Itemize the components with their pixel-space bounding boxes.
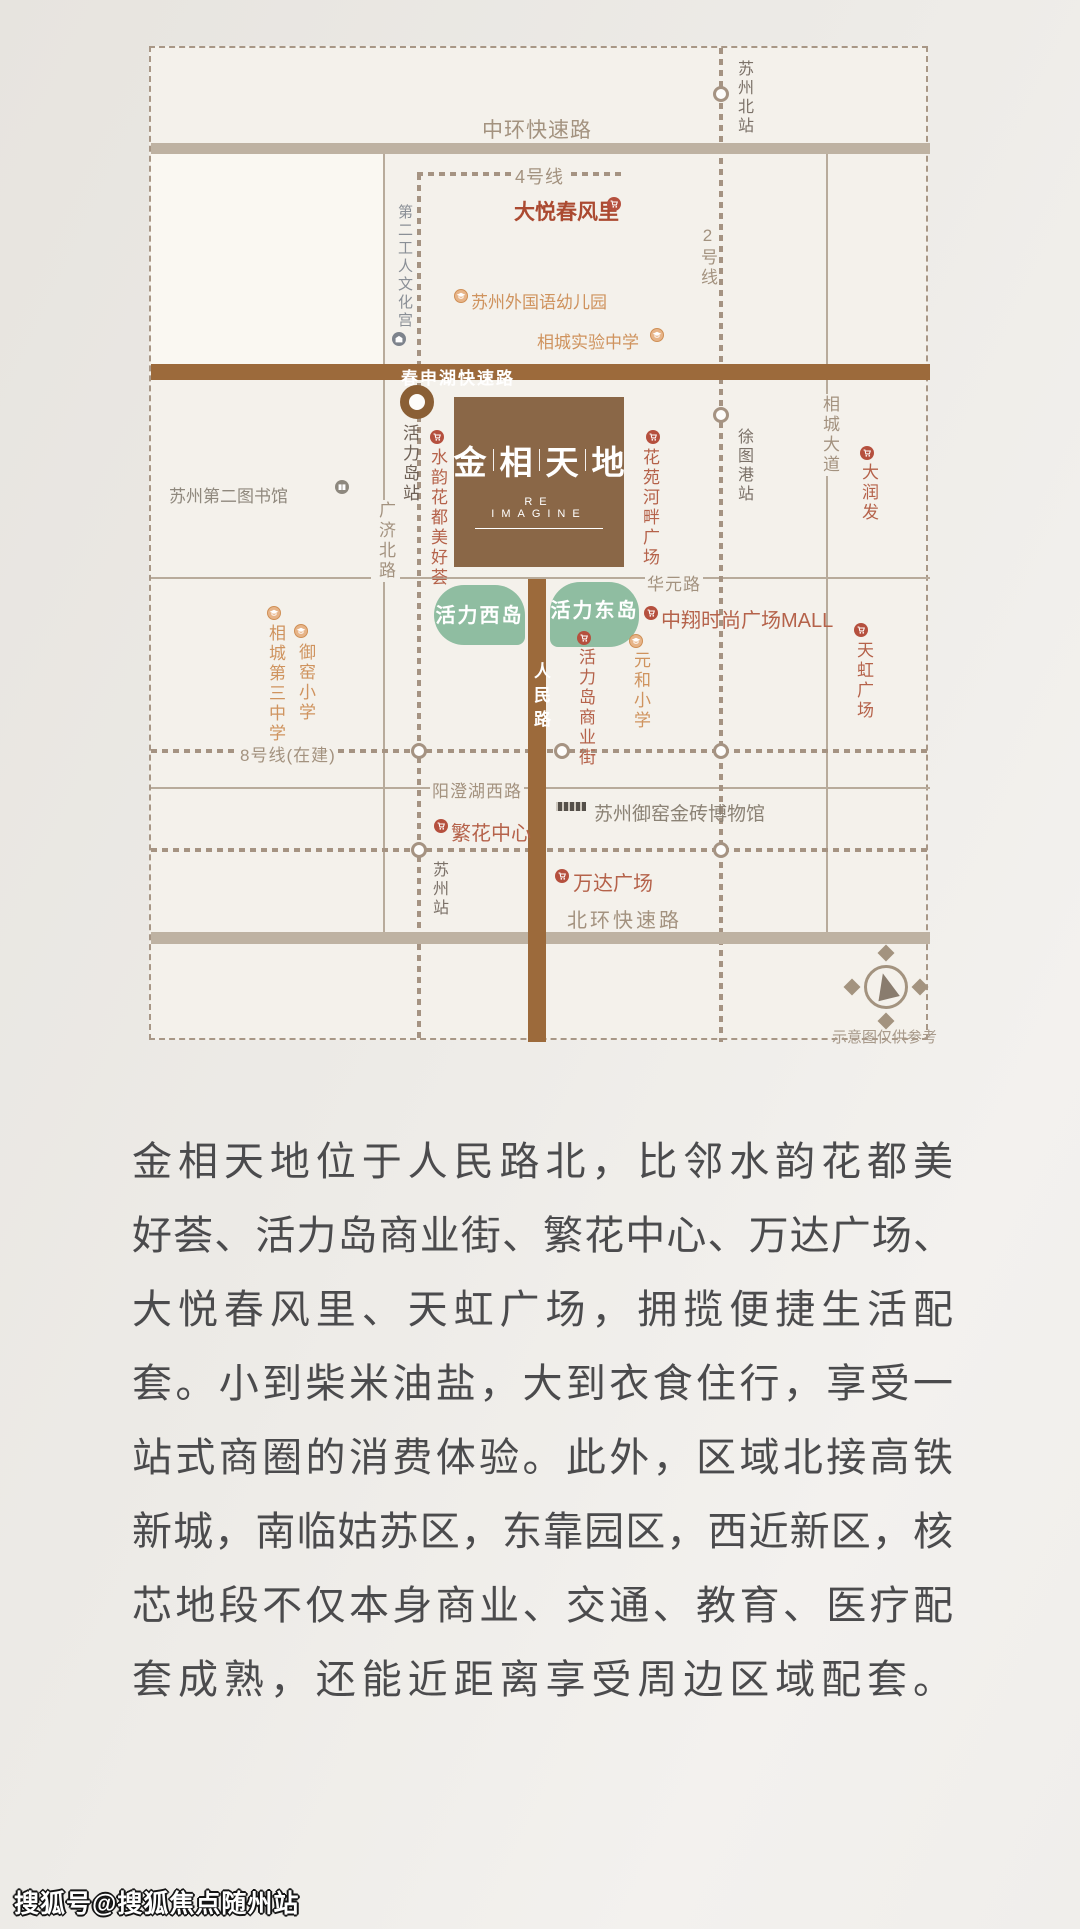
- school-icon: [629, 634, 643, 648]
- compass-icon: [846, 947, 926, 1027]
- kindergarten-label: 苏州外国语幼儿园: [471, 288, 607, 313]
- chunshen-expressway: [151, 364, 930, 380]
- suzhou-north-station-label: 苏州北站: [731, 60, 755, 136]
- workers-palace-label: 第二工人文化宫: [394, 204, 415, 330]
- zhongxiang-mall-label: 中翔时尚广场MALL: [661, 604, 833, 633]
- huayuan-road-label: 华元路: [645, 569, 703, 596]
- suzhou-station-label: 苏州站: [424, 860, 452, 919]
- fanhua-center-label: 繁花中心: [451, 817, 531, 846]
- logo-char: 天: [546, 436, 579, 484]
- paragraph-line: 芯地段不仅本身商业、交通、教育、医疗配: [132, 1569, 954, 1643]
- map-disclaimer: 示意图仅供参考: [832, 1026, 937, 1047]
- xiangcheng-avenue-line: [826, 154, 828, 932]
- paragraph-line: 新城，南临姑苏区，东靠园区，西近新区，核: [132, 1495, 954, 1569]
- cart-icon: [860, 446, 874, 460]
- school-icon: [294, 624, 308, 638]
- culture-palace-icon: [392, 332, 406, 346]
- no3-middle-label: 相城第三中学: [263, 624, 288, 744]
- metro-line2-track: [719, 48, 723, 1042]
- metro-line2-label: 2号线: [695, 226, 720, 288]
- logo-separator: [493, 449, 494, 471]
- zhonghuan-road-label: 中环快速路: [482, 114, 592, 144]
- cart-icon: [644, 606, 658, 620]
- logo-separator: [539, 449, 540, 471]
- logo-char: 金: [454, 436, 487, 484]
- yuanhe-primary-label: 元和小学: [628, 651, 653, 731]
- museum-icon: [552, 799, 590, 814]
- shuiyun-label: 水韵花都美好荟: [425, 448, 450, 588]
- logo-char: 相: [500, 436, 533, 484]
- cart-icon: [434, 819, 448, 833]
- xiangcheng-avenue-label: 相城大道: [815, 394, 844, 476]
- cart-icon: [555, 869, 569, 883]
- shangyejie-label: 活力岛商业街: [573, 648, 598, 768]
- cart-icon: [646, 430, 660, 444]
- beihuan-road-label: 北环快速路: [567, 904, 682, 933]
- island-east: 活力东岛: [550, 582, 639, 647]
- library-label: 苏州第二图书馆: [169, 482, 288, 507]
- metro-line8-label: 8号线(在建): [238, 740, 338, 767]
- school-icon: [454, 289, 468, 303]
- line8-line2-interchange-dot: [713, 743, 729, 759]
- south-line2-station-dot: [713, 842, 729, 858]
- sohu-watermark: 搜狐号@搜狐焦点随州站: [14, 1884, 299, 1920]
- renmin-road: [528, 579, 546, 1042]
- tianhong-plaza-label: 天虹广场: [851, 641, 876, 721]
- wanda-plaza-label: 万达广场: [573, 867, 653, 896]
- paragraph-line: 好荟、活力岛商业街、繁花中心、万达广场、: [132, 1199, 954, 1273]
- project-logo-subtitle: RE IMAGINE: [475, 496, 603, 529]
- cart-icon: [854, 623, 868, 637]
- paragraph-line: 套成熟，还能近距离享受周边区域配套。: [132, 1643, 954, 1717]
- huolidao-station-dot: [400, 385, 434, 419]
- guangji-road-label: 广济北路: [371, 500, 400, 582]
- cart-icon: [430, 430, 444, 444]
- renmin-road-label: 人民路: [528, 662, 553, 734]
- paragraph-line: 金相天地位于人民路北，比邻水韵花都美: [132, 1125, 954, 1199]
- xiangcheng-middle-label: 相城实验中学: [537, 328, 639, 353]
- yangcheng-road-label: 阳澄湖西路: [430, 776, 524, 803]
- island-west: 活力西岛: [434, 585, 525, 645]
- huayuan-plaza-label: 花苑河畔广场: [637, 448, 662, 568]
- darunfa-label: 大润发: [856, 463, 881, 523]
- zhonghuan-expressway: [151, 143, 930, 154]
- xutugang-station-dot: [713, 407, 729, 423]
- compass-point-east: [912, 979, 929, 996]
- project-logo: 金相天地 RE IMAGINE: [454, 397, 624, 567]
- library-icon: [335, 480, 349, 494]
- paragraph-line: 大悦春风里、天虹广场，拥揽便捷生活配: [132, 1273, 954, 1347]
- xutugang-station-label: 徐图港站: [731, 428, 755, 504]
- huolidao-station-label: 活力岛站: [397, 424, 422, 504]
- metro-line4-label: 4号线: [513, 162, 566, 190]
- cart-icon: [577, 631, 591, 645]
- project-logo-wordmark: 金相天地: [454, 436, 625, 484]
- logo-separator: [585, 449, 586, 471]
- line8-line4-interchange-dot: [411, 743, 427, 759]
- compass-point-west: [844, 979, 861, 996]
- metro-line4-track: [417, 174, 421, 1042]
- suzhou-north-station-dot: [713, 86, 729, 102]
- school-icon: [650, 328, 664, 342]
- island-west-label: 活力西岛: [436, 599, 524, 645]
- museum-label: 苏州御窑金砖博物馆: [594, 799, 765, 826]
- logo-char: 地: [592, 436, 625, 484]
- south-line4-station-dot: [411, 842, 427, 858]
- yuyao-primary-label: 御窑小学: [293, 643, 318, 723]
- description-paragraph: 金相天地位于人民路北，比邻水韵花都美 好荟、活力岛商业街、繁花中心、万达广场、 …: [132, 1125, 954, 1717]
- dayue-chunfengli-label: 大悦春风里: [514, 196, 619, 226]
- paragraph-line: 站式商圈的消费体验。此外，区域北接高铁: [132, 1421, 954, 1495]
- map-block: [151, 154, 383, 364]
- location-map: 中环快速路 4号线 2号线 春申湖快速路 广济北路 华元路 相城大道 人民路 8…: [149, 46, 928, 1040]
- school-icon: [267, 606, 281, 620]
- paragraph-line: 套。小到柴米油盐，大到衣食住行，享受一: [132, 1347, 954, 1421]
- compass-point-north: [878, 945, 895, 962]
- island-east-label: 活力东岛: [551, 594, 639, 647]
- line8-station-dot: [554, 743, 570, 759]
- cart-icon: [607, 197, 621, 211]
